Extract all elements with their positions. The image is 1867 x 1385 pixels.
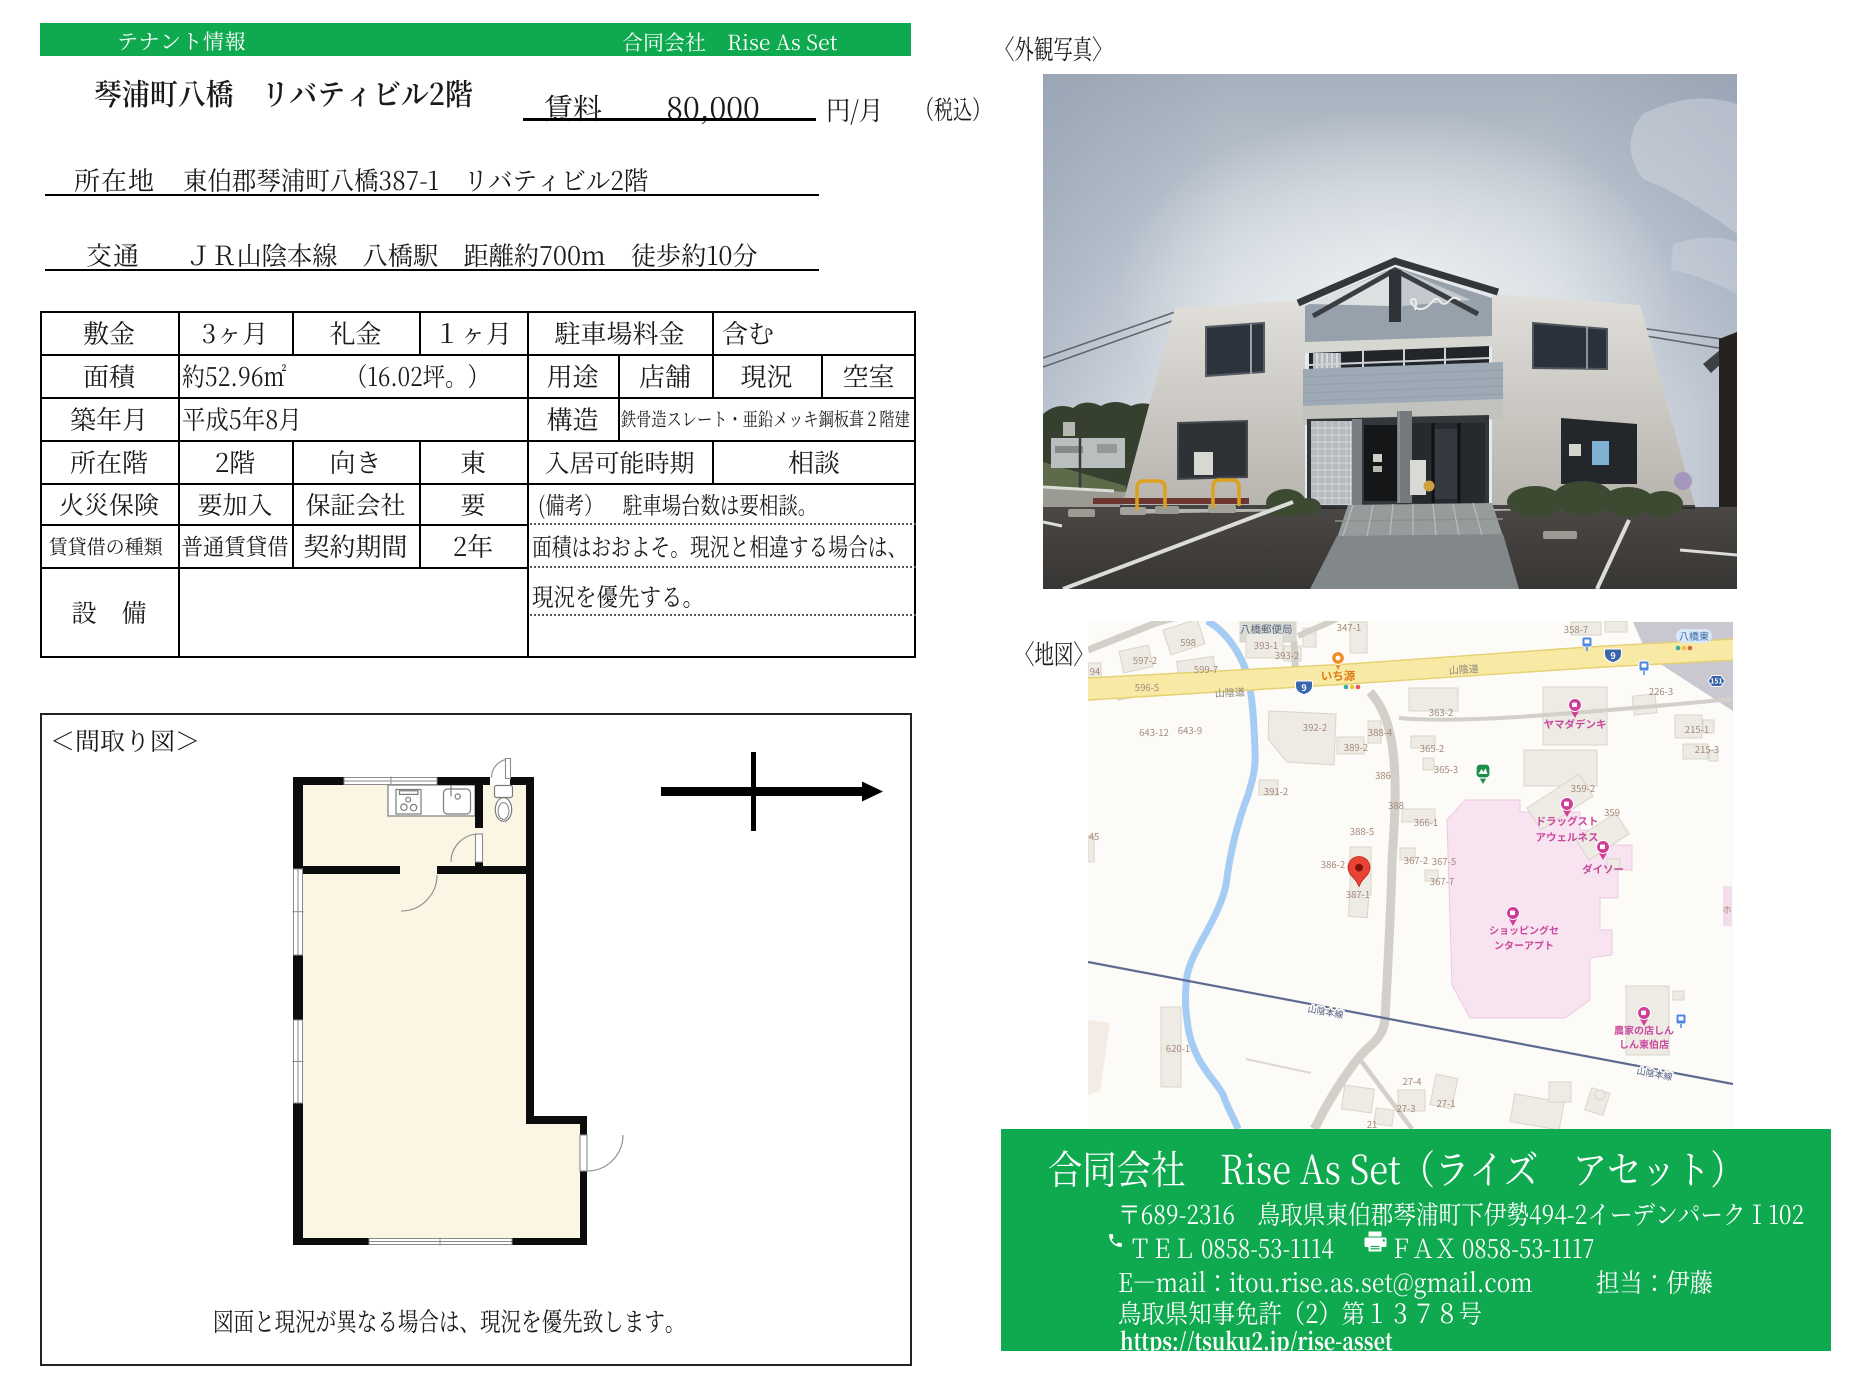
svg-text:365-3: 365-3: [1434, 762, 1458, 776]
svg-text:ドラッグスト: ドラッグスト: [1536, 814, 1599, 829]
svg-text:365-2: 365-2: [1420, 741, 1444, 755]
svg-text:389-2: 389-2: [1344, 740, 1368, 754]
svg-text:45: 45: [1089, 829, 1100, 843]
svg-text:386-2: 386-2: [1321, 857, 1345, 871]
svg-text:358-7: 358-7: [1564, 622, 1588, 636]
svg-text:386: 386: [1375, 768, 1391, 782]
svg-text:八橋郵便局: 八橋郵便局: [1240, 622, 1293, 637]
svg-text:ショッピングセ: ショッピングセ: [1489, 922, 1559, 937]
svg-text:359-2: 359-2: [1571, 781, 1595, 795]
svg-text:643-9: 643-9: [1178, 723, 1202, 737]
svg-text:農家の店しん: 農家の店しん: [1614, 1022, 1674, 1037]
svg-text:21: 21: [1367, 1117, 1378, 1129]
svg-text:しん東伯店: しん東伯店: [1619, 1036, 1669, 1051]
svg-text:367-7: 367-7: [1430, 874, 1454, 888]
svg-text:226-3: 226-3: [1649, 684, 1673, 698]
svg-text:367-5: 367-5: [1432, 854, 1456, 868]
svg-text:393-2: 393-2: [1275, 648, 1299, 662]
svg-text:388-5: 388-5: [1350, 824, 1374, 838]
svg-text:597-2: 597-2: [1133, 653, 1157, 667]
svg-text:367-2: 367-2: [1404, 853, 1428, 867]
svg-text:八橋東: 八橋東: [1679, 628, 1709, 643]
svg-text:いち源: いち源: [1321, 668, 1356, 684]
svg-text:392-2: 392-2: [1303, 720, 1327, 734]
svg-text:366-1: 366-1: [1414, 815, 1438, 829]
svg-text:27-4: 27-4: [1402, 1074, 1421, 1088]
svg-text:ホ: ホ: [1722, 903, 1731, 916]
svg-text:山陰道: 山陰道: [1214, 683, 1245, 700]
svg-text:388-4: 388-4: [1368, 725, 1392, 739]
svg-text:27-3: 27-3: [1396, 1101, 1415, 1115]
svg-text:27-1: 27-1: [1436, 1096, 1455, 1110]
svg-text:9: 9: [1610, 649, 1615, 662]
svg-text:387-1: 387-1: [1346, 887, 1370, 901]
svg-text:アウェルネス: アウェルネス: [1536, 830, 1599, 845]
svg-text:151: 151: [1710, 677, 1722, 687]
svg-text:391-2: 391-2: [1264, 784, 1288, 798]
svg-text:215-1: 215-1: [1685, 722, 1709, 736]
svg-text:347-1: 347-1: [1337, 621, 1361, 634]
svg-text:94: 94: [1090, 664, 1101, 678]
svg-text:9: 9: [1301, 681, 1306, 694]
svg-text:596-5: 596-5: [1135, 680, 1159, 694]
svg-text:359: 359: [1604, 805, 1620, 819]
svg-text:620-1: 620-1: [1166, 1041, 1190, 1055]
svg-text:598: 598: [1180, 635, 1196, 649]
svg-text:215-3: 215-3: [1695, 742, 1719, 756]
svg-text:599-7: 599-7: [1194, 662, 1218, 676]
svg-text:ヤマダデンキ: ヤマダデンキ: [1544, 717, 1607, 732]
svg-text:ダイソー: ダイソー: [1582, 862, 1624, 877]
svg-text:ンターアプト: ンターアプト: [1494, 937, 1554, 952]
svg-text:363-2: 363-2: [1429, 705, 1453, 719]
svg-text:388: 388: [1388, 798, 1404, 812]
svg-text:山陰道: 山陰道: [1448, 660, 1479, 677]
svg-text:643-12: 643-12: [1139, 725, 1169, 739]
